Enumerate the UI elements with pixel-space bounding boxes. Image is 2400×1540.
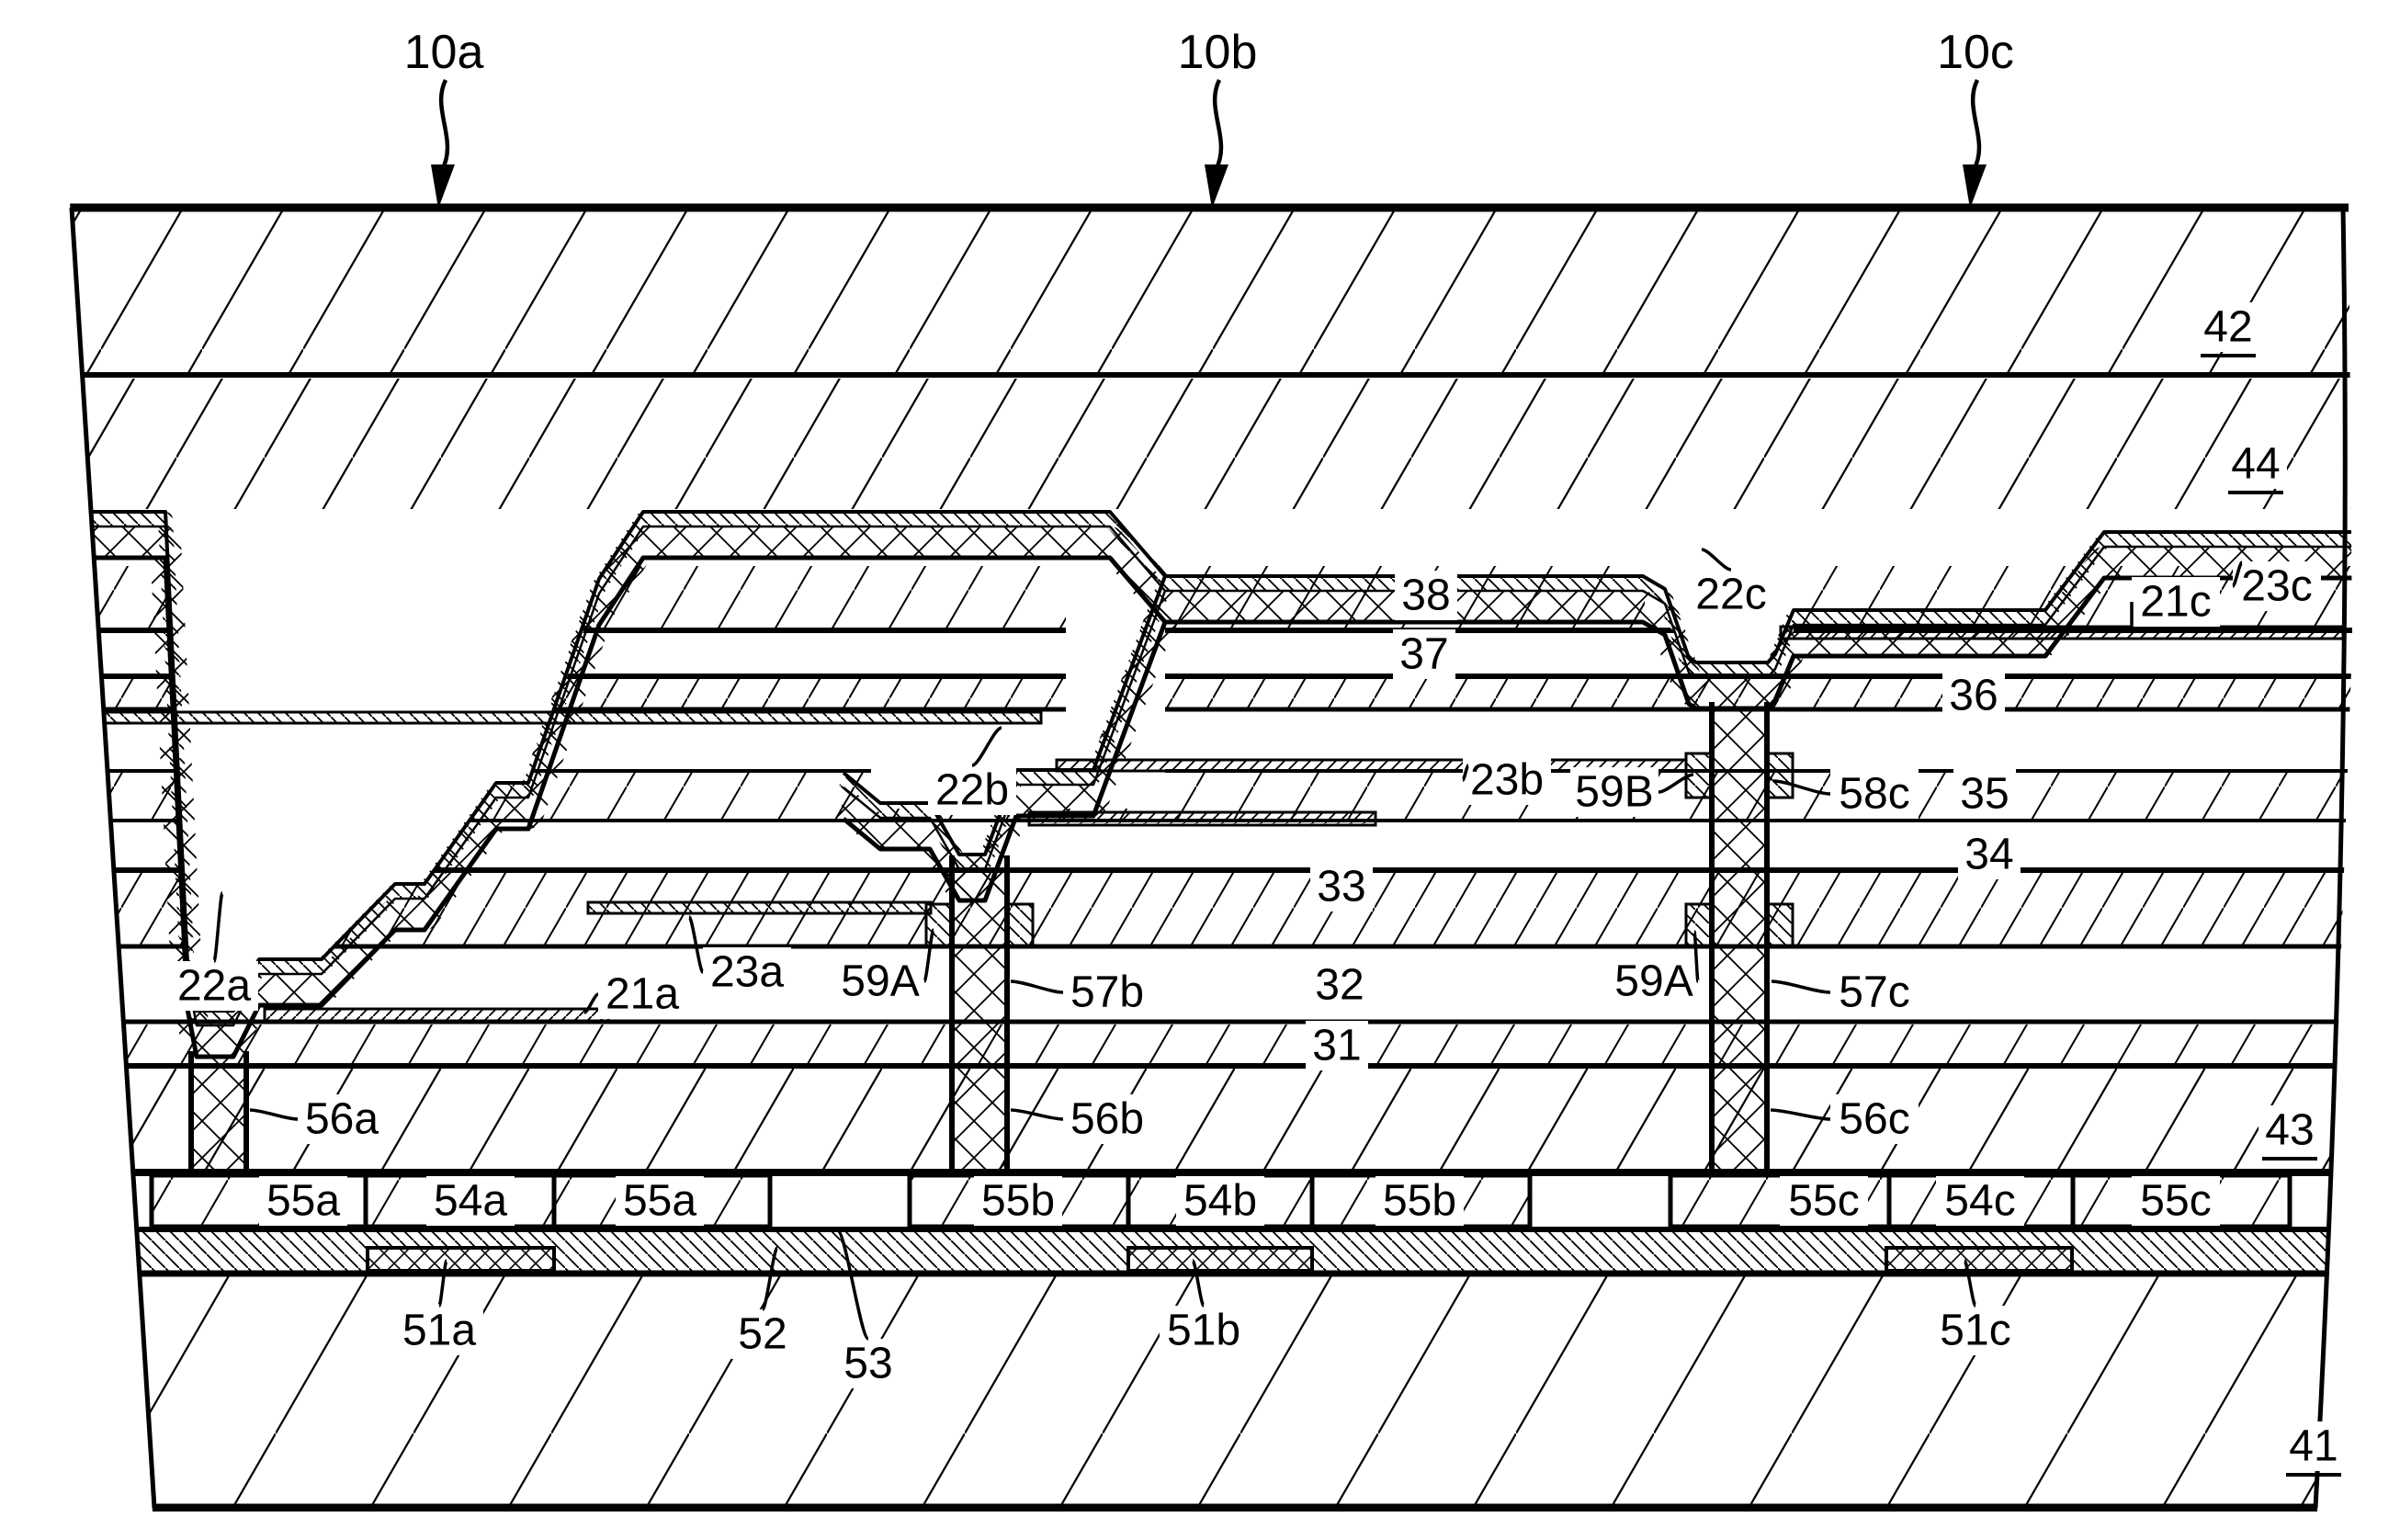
label-33: 33 xyxy=(1317,863,1365,912)
layer-44 xyxy=(51,379,2359,509)
label-58c: 58c xyxy=(1839,770,1909,819)
label-43: 43 xyxy=(2265,1106,2314,1155)
electrode-23a xyxy=(588,902,931,913)
label-55b: 55b xyxy=(981,1177,1055,1226)
via-56b-57b xyxy=(952,859,1007,1173)
label-59A: 59A xyxy=(1614,957,1692,1006)
label-21a: 21a xyxy=(606,970,679,1019)
label-54b: 54b xyxy=(1183,1177,1257,1226)
label-55a: 55a xyxy=(623,1177,696,1226)
label-56a: 56a xyxy=(305,1095,379,1144)
pixel-pointer-arrows: 10a10b10c xyxy=(404,26,2014,209)
label-53: 53 xyxy=(843,1340,892,1388)
label-51c: 51c xyxy=(1940,1307,2010,1355)
label-41: 41 xyxy=(2289,1422,2338,1471)
pixel-label-10c: 10c xyxy=(1937,26,2014,79)
pixel-label-10a: 10a xyxy=(404,26,484,79)
label-51a: 51a xyxy=(402,1307,476,1355)
label-22c: 22c xyxy=(1695,571,1766,619)
label-55b: 55b xyxy=(1383,1177,1456,1226)
electrode-21a xyxy=(265,1009,608,1022)
label-42: 42 xyxy=(2203,303,2252,352)
label-34: 34 xyxy=(1964,831,2013,879)
label-22b: 22b xyxy=(935,766,1009,815)
pad-59A xyxy=(1686,904,1712,946)
label-36: 36 xyxy=(1949,672,1998,720)
shield-51c xyxy=(1886,1248,2072,1271)
label-32: 32 xyxy=(1315,961,1364,1010)
arrow-shaft xyxy=(1973,80,1979,170)
leader-line xyxy=(1772,981,1830,992)
layer-42 xyxy=(51,211,2359,372)
label-57c: 57c xyxy=(1839,968,1909,1017)
wiring-strip xyxy=(55,712,1041,723)
layer-31 xyxy=(51,1025,2359,1064)
arrow-shaft xyxy=(441,80,447,170)
via-56c-57c-58c xyxy=(1712,706,1767,1173)
label-56c: 56c xyxy=(1839,1095,1909,1144)
label-21c: 21c xyxy=(2140,578,2211,627)
label-38: 38 xyxy=(1401,572,1450,620)
electrode-21c xyxy=(1781,627,2343,639)
label-44: 44 xyxy=(2231,440,2280,489)
label-55c: 55c xyxy=(2140,1177,2211,1226)
arrow-head-icon xyxy=(431,164,455,209)
label-23c: 23c xyxy=(2241,562,2312,611)
label-54a: 54a xyxy=(434,1177,507,1226)
label-59A: 59A xyxy=(841,957,919,1006)
label-55c: 55c xyxy=(1788,1177,1859,1226)
arrow-shaft xyxy=(1215,80,1221,170)
label-54c: 54c xyxy=(1944,1177,2015,1226)
pad-59A xyxy=(1007,904,1033,946)
via-56a xyxy=(191,1055,246,1173)
label-37: 37 xyxy=(1399,630,1448,679)
label-23a: 23a xyxy=(710,948,784,997)
electrode-21b xyxy=(1029,812,1375,825)
layer-43 xyxy=(51,1069,2359,1170)
patent-figure-canvas: 10a10b10c 4244383722c21c23c3622b23b59B58… xyxy=(0,0,2400,1540)
pad-59B xyxy=(1767,753,1793,798)
leader-line xyxy=(1011,981,1063,992)
label-52: 52 xyxy=(738,1310,787,1359)
label-51b: 51b xyxy=(1167,1307,1240,1355)
label-55a: 55a xyxy=(266,1177,340,1226)
pixel-label-10b: 10b xyxy=(1178,26,1258,79)
label-31: 31 xyxy=(1312,1022,1361,1070)
label-59B: 59B xyxy=(1575,768,1653,817)
pad-59A xyxy=(1767,904,1793,946)
label-22a: 22a xyxy=(177,962,251,1011)
shield-51a xyxy=(368,1248,554,1271)
label-35: 35 xyxy=(1960,770,2009,819)
shield-51b xyxy=(1128,1248,1312,1271)
arrow-head-icon xyxy=(1205,164,1228,209)
label-56b: 56b xyxy=(1070,1095,1144,1144)
arrow-head-icon xyxy=(1963,164,1987,209)
label-57b: 57b xyxy=(1070,968,1144,1017)
label-23b: 23b xyxy=(1470,756,1544,805)
